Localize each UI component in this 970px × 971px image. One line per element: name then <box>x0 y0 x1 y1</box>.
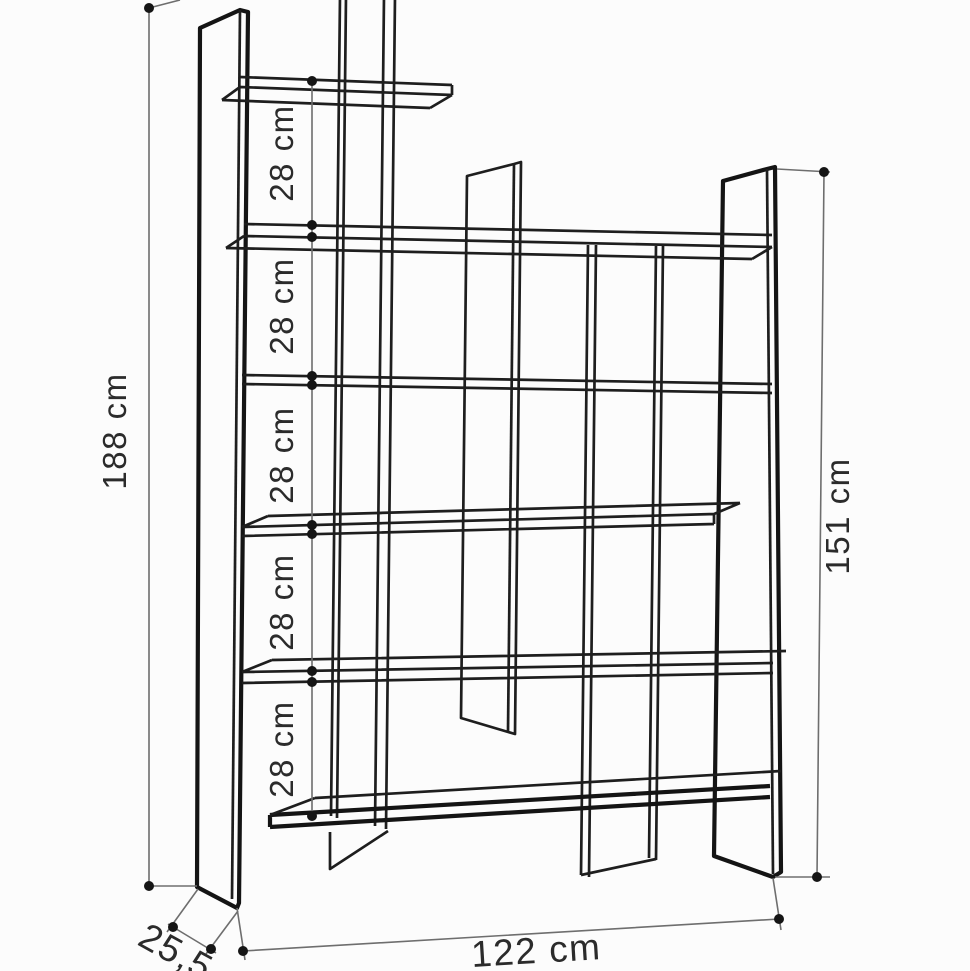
shelf-6-bottom <box>270 771 781 827</box>
center-panel-edge-line <box>508 164 514 731</box>
shelf-4 <box>242 503 740 536</box>
dim-dot <box>307 371 317 381</box>
left-panel-outline <box>197 10 248 908</box>
upright-post-a <box>331 0 346 818</box>
dim-dot <box>812 872 822 882</box>
height-dimension-line <box>149 0 197 886</box>
shelf-spacing-label-2: 28 cm <box>263 257 300 354</box>
dim-dot <box>238 946 248 956</box>
center-divider-panel <box>461 162 521 734</box>
total-height-label: 188 cm <box>96 372 133 489</box>
dim-dot <box>307 220 317 230</box>
dim-dot <box>307 520 317 530</box>
shelf-spacing-label-3: 28 cm <box>263 406 300 503</box>
shelf-spacing-label-1: 28 cm <box>263 104 300 201</box>
dimension-depth: 25,5 cm <box>132 889 276 971</box>
shelf-1-top <box>222 77 452 108</box>
shelf-spacing-label-4: 28 cm <box>263 553 300 650</box>
dim-dot <box>307 76 317 86</box>
dim-dot <box>307 677 317 687</box>
diagram-canvas: 188 cm 28 cm 28 cm 28 cm 28 cm 28 cm <box>0 0 970 971</box>
dim-dot <box>144 3 154 13</box>
dim-dot <box>144 881 154 891</box>
dimension-total-height: 188 cm <box>96 0 197 891</box>
dimension-total-width: 122 cm <box>237 878 784 971</box>
dim-dot <box>307 380 317 390</box>
dim-dot <box>774 914 784 924</box>
shelf-3 <box>242 375 772 393</box>
shelf-2 <box>226 224 772 259</box>
upright-post-d <box>649 246 663 860</box>
dim-dot <box>307 529 317 539</box>
shelf-5 <box>242 651 786 683</box>
left-side-panel <box>197 10 248 908</box>
shelf-spacing-label-5: 28 cm <box>263 700 300 797</box>
upright-post-b <box>375 0 395 829</box>
dim-dot <box>307 232 317 242</box>
bookshelf-dimension-diagram: 188 cm 28 cm 28 cm 28 cm 28 cm 28 cm <box>0 0 970 971</box>
dim-dot <box>819 167 829 177</box>
dimension-shelf-spacings: 28 cm 28 cm 28 cm 28 cm 28 cm <box>263 76 317 821</box>
dimension-right-height: 151 cm <box>775 167 856 882</box>
dim-dot <box>307 666 317 676</box>
right-panel-edge-line <box>767 169 773 874</box>
right-height-label: 151 cm <box>819 457 856 574</box>
total-width-label: 122 cm <box>470 926 603 971</box>
dim-dot <box>307 811 317 821</box>
depth-label: 25,5 cm <box>132 915 276 971</box>
left-bottom-foot <box>330 831 388 869</box>
right-mid-foot <box>581 859 656 875</box>
